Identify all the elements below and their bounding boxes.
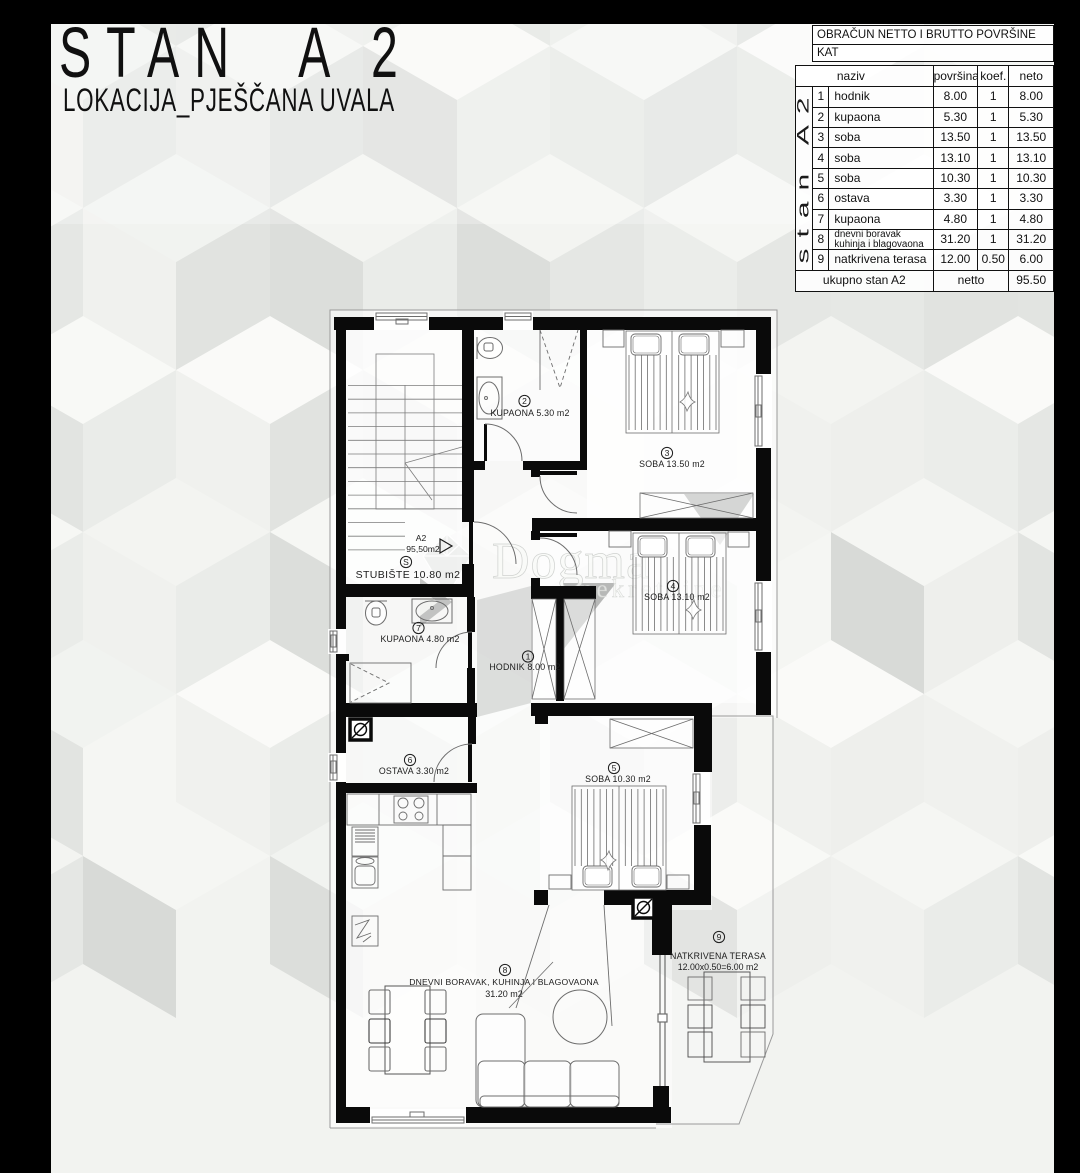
svg-text:OSTAVA 3.30 m2: OSTAVA 3.30 m2 (379, 766, 449, 776)
svg-text:3: 3 (665, 448, 670, 458)
svg-text:NATKRIVENA TERASA: NATKRIVENA TERASA (670, 951, 766, 961)
svg-text:SOBA 13.10 m2: SOBA 13.10 m2 (644, 592, 710, 602)
svg-text:KUPAONA 4.80 m2: KUPAONA 4.80 m2 (380, 634, 459, 644)
svg-text:KUPAONA 5.30 m2: KUPAONA 5.30 m2 (490, 408, 569, 418)
svg-text:SOBA 13.50 m2: SOBA 13.50 m2 (639, 459, 705, 469)
svg-text:HODNIK 8.00 m2: HODNIK 8.00 m2 (489, 662, 560, 672)
svg-text:DNEVNI BORAVAK, KUHINJA I BLAG: DNEVNI BORAVAK, KUHINJA I BLAGOVAONA (409, 977, 599, 987)
svg-text:12.00x0.50=6.00 m2: 12.00x0.50=6.00 m2 (678, 962, 759, 972)
svg-text:7: 7 (416, 623, 421, 633)
svg-text:8: 8 (503, 965, 508, 975)
svg-text:4: 4 (671, 581, 676, 591)
svg-text:9: 9 (717, 932, 722, 942)
svg-text:SOBA 10.30 m2: SOBA 10.30 m2 (585, 774, 651, 784)
svg-text:31.20 m2: 31.20 m2 (485, 989, 523, 999)
svg-text:S: S (403, 557, 409, 567)
svg-text:A2: A2 (416, 533, 427, 543)
svg-text:STUBIŠTE 10.80 m2: STUBIŠTE 10.80 m2 (356, 568, 461, 581)
svg-text:6: 6 (408, 755, 413, 765)
svg-text:95,50m2: 95,50m2 (406, 544, 440, 554)
svg-text:1: 1 (526, 652, 531, 662)
svg-text:2: 2 (522, 396, 527, 406)
svg-text:5: 5 (612, 763, 617, 773)
